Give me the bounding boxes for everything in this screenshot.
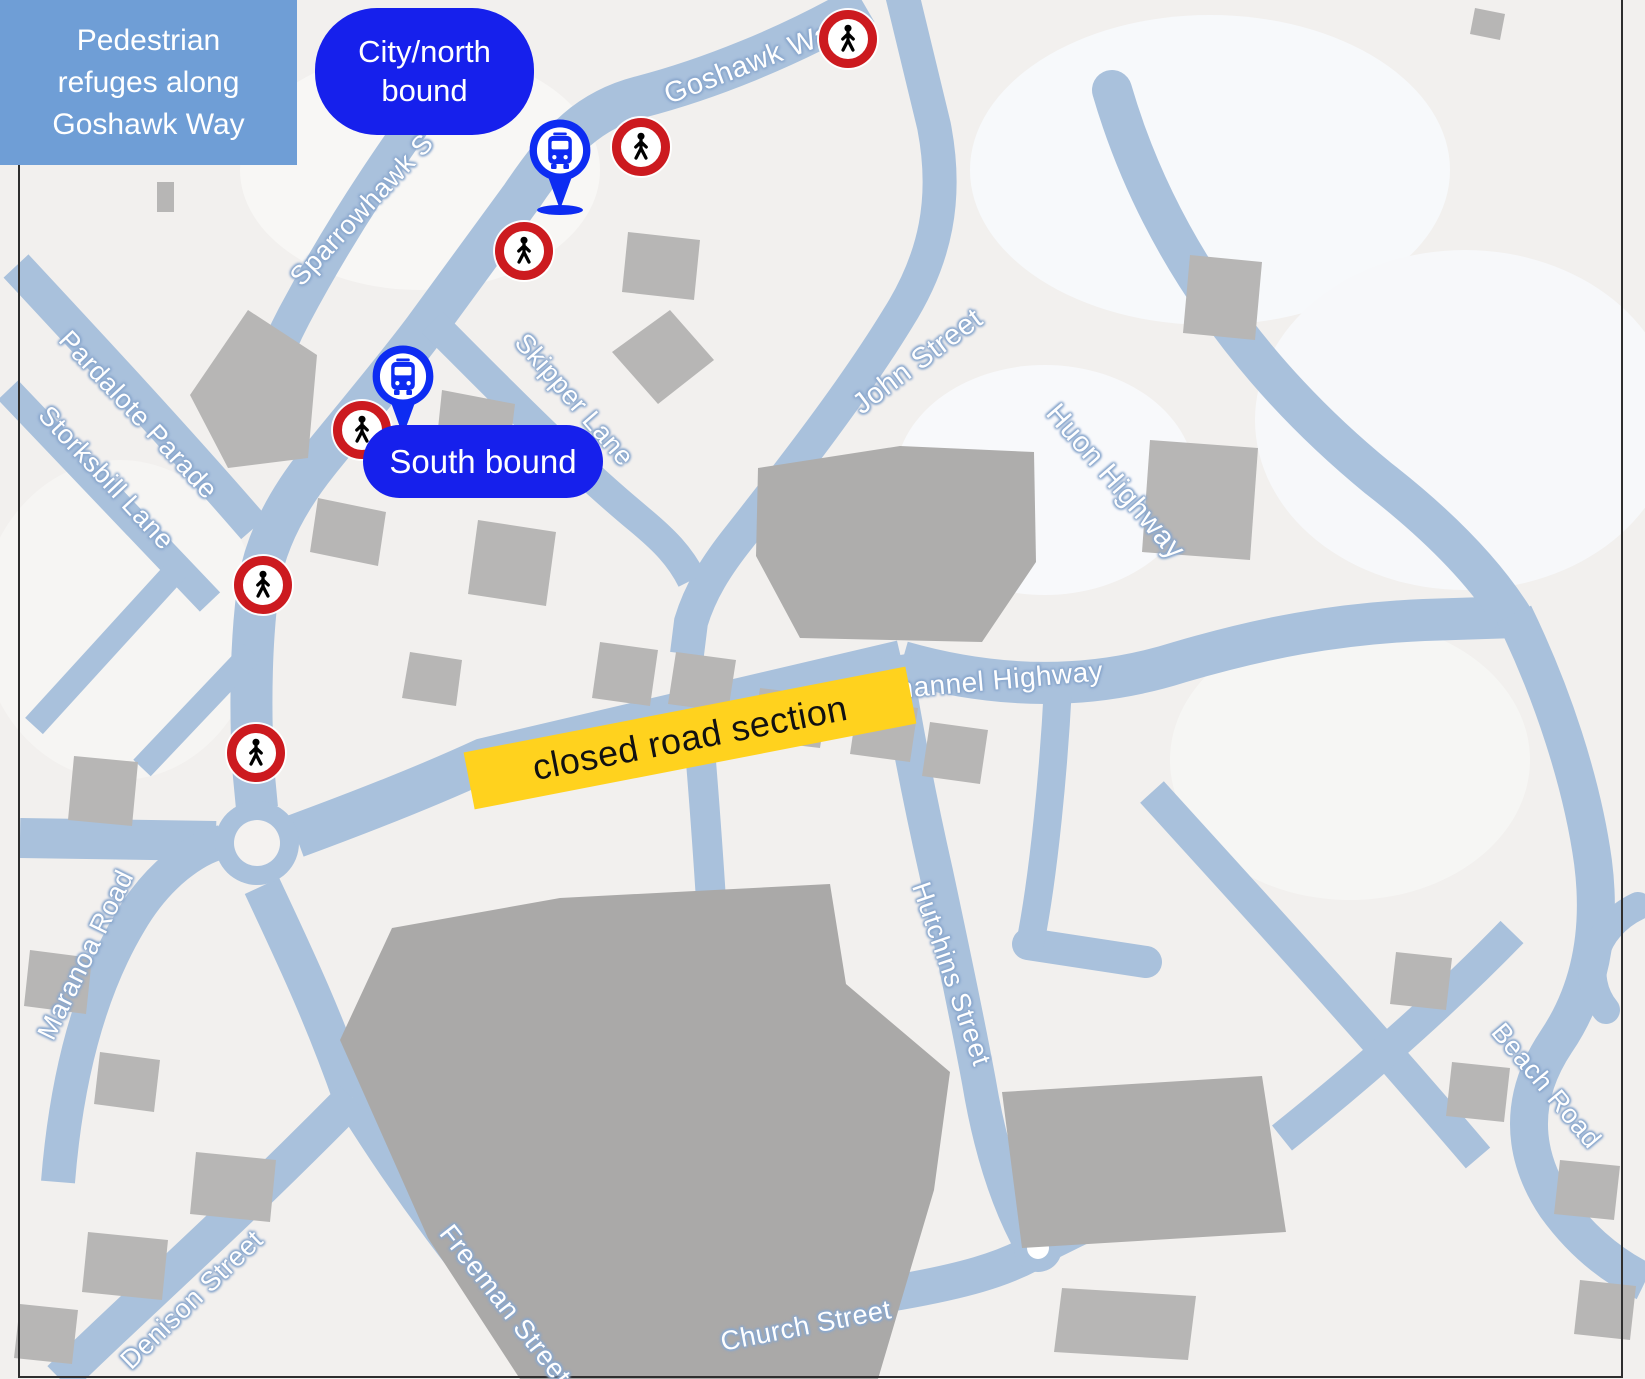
callout-city-north-bound-label: City/north bound — [327, 33, 522, 111]
pedestrian-refuge-marker — [819, 10, 877, 68]
pedestrian-icon — [507, 234, 541, 268]
map-title-line: Pedestrian — [77, 20, 220, 62]
pedestrian-icon — [624, 130, 658, 164]
pedestrian-icon — [239, 736, 273, 770]
bus-stop-pin-north — [524, 116, 596, 213]
callout-city-north-bound: City/north bound — [315, 8, 534, 135]
pedestrian-refuge-marker — [234, 556, 292, 614]
pedestrian-icon — [246, 568, 280, 602]
callout-south-bound-label: South bound — [389, 441, 576, 482]
pedestrian-refuge-marker — [227, 724, 285, 782]
pedestrian-icon — [831, 22, 865, 56]
pedestrian-refuge-marker — [612, 118, 670, 176]
callout-south-bound: South bound — [363, 425, 603, 498]
bus-icon — [530, 120, 591, 210]
map-title-line: Goshawk Way — [52, 104, 244, 146]
map-title-line: refuges along — [58, 62, 240, 104]
pedestrian-refuge-marker — [495, 222, 553, 280]
map-title-card: Pedestrian refuges along Goshawk Way — [0, 0, 297, 165]
map-page: Goshawk Way Sparrowhawk S Skipper Lane P… — [0, 0, 1645, 1379]
